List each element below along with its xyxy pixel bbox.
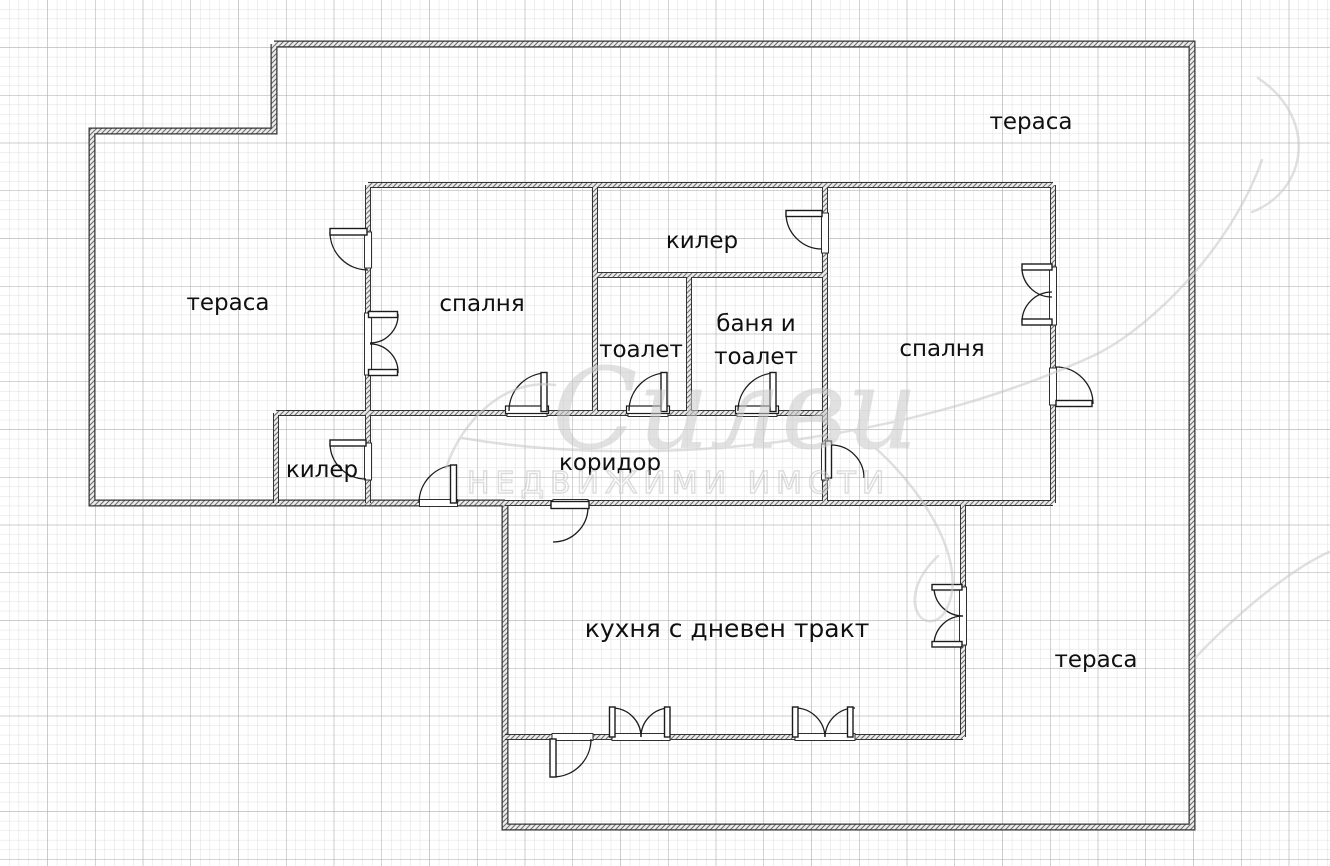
room-label-closet-top: килер bbox=[666, 228, 738, 254]
watermark-script: Силви bbox=[552, 345, 918, 475]
room-label-closet-left: килер bbox=[286, 457, 358, 483]
room-label-terrace-bottom: тераса bbox=[1055, 647, 1138, 673]
room-label-kitchen: кухня с дневен тракт bbox=[585, 614, 870, 643]
room-label-bath-line1: баня и bbox=[716, 311, 795, 337]
room-label-bedroom-left: спалня bbox=[439, 291, 524, 317]
floor-plan-page: тераса тераса тераса спалня спалня килер… bbox=[0, 0, 1330, 866]
floor-plan-svg: тераса тераса тераса спалня спалня килер… bbox=[0, 0, 1330, 866]
watermark-caps: НЕДВИЖИМИ ИМОТИ bbox=[467, 466, 890, 501]
room-label-terrace-left: тераса bbox=[187, 290, 270, 316]
room-label-terrace-top: тераса bbox=[990, 109, 1073, 135]
